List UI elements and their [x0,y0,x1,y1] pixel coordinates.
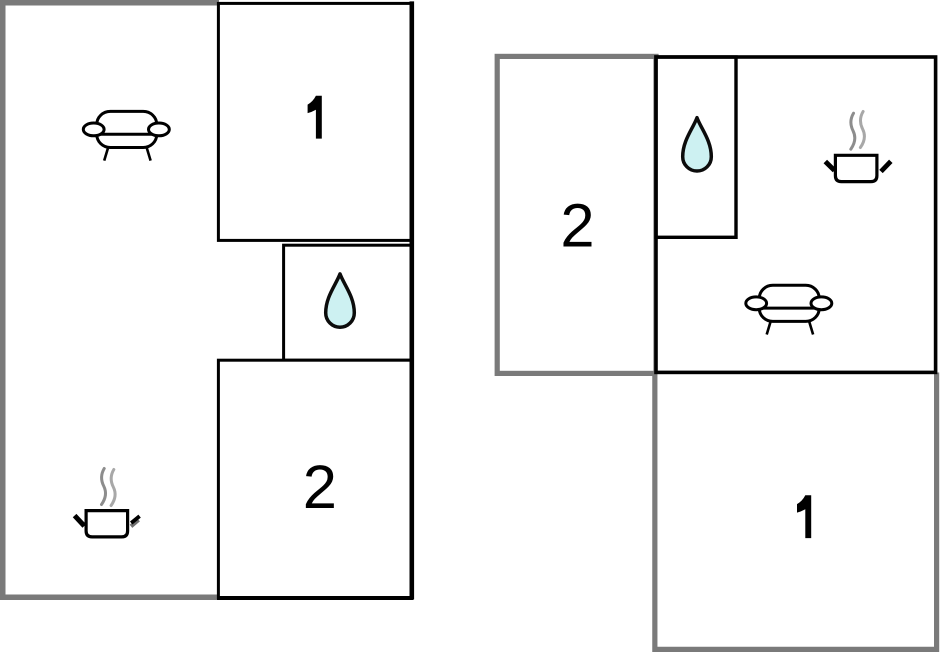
svg-text:2: 2 [560,192,594,261]
svg-text:2: 2 [303,453,337,522]
